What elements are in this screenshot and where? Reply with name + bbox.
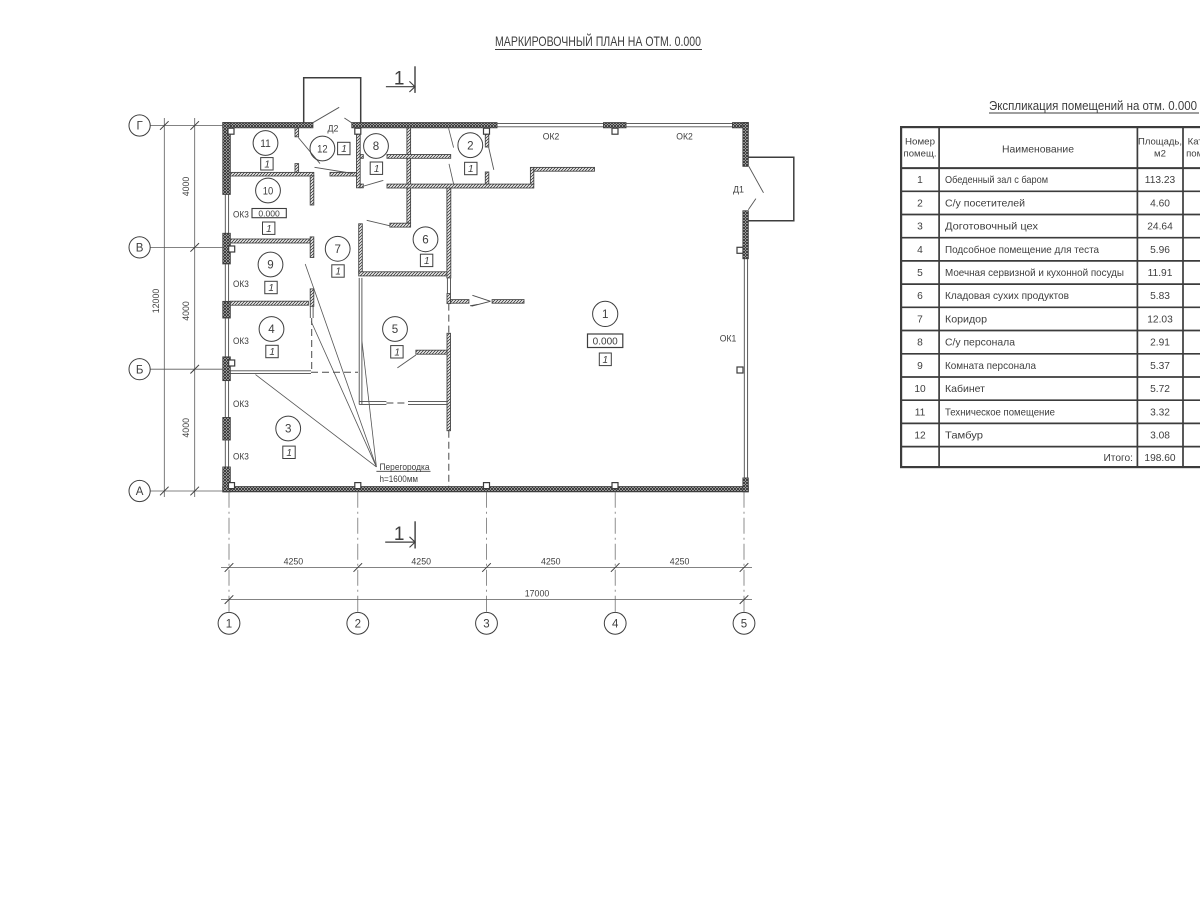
svg-text:ОК3: ОК3	[233, 399, 249, 409]
svg-text:1: 1	[341, 144, 347, 155]
svg-text:Кладовая сухих продуктов: Кладовая сухих продуктов	[945, 291, 1069, 302]
svg-text:h=1600мм: h=1600мм	[380, 474, 419, 484]
svg-text:2: 2	[917, 198, 923, 209]
svg-text:ОК2: ОК2	[543, 132, 560, 142]
svg-text:198.60: 198.60	[1144, 453, 1175, 464]
svg-text:Кабинет: Кабинет	[945, 383, 985, 395]
svg-text:5.96: 5.96	[1150, 245, 1170, 256]
svg-text:МАРКИРОВОЧНЫЙ ПЛАН НА ОТМ. 0.0: МАРКИРОВОЧНЫЙ ПЛАН НА ОТМ. 0.000	[495, 34, 701, 49]
svg-text:3.32: 3.32	[1150, 407, 1170, 418]
svg-text:12: 12	[914, 431, 926, 442]
svg-text:1: 1	[468, 164, 474, 175]
svg-text:Обеденный зал с баром: Обеденный зал с баром	[945, 174, 1048, 186]
svg-text:Подсобное помещение для теста: Подсобное помещение для теста	[945, 244, 1099, 256]
svg-text:1: 1	[917, 175, 923, 186]
svg-text:4: 4	[268, 323, 275, 336]
svg-text:Коридор: Коридор	[945, 314, 987, 325]
svg-text:Экспликация помещений на отм.: Экспликация помещений на отм. 0.000	[989, 98, 1197, 113]
svg-text:Кат.: Кат.	[1188, 137, 1200, 148]
svg-text:Тамбур: Тамбур	[945, 430, 983, 442]
svg-text:ОК1: ОК1	[720, 334, 737, 344]
svg-text:Б: Б	[136, 364, 144, 376]
svg-text:5.83: 5.83	[1150, 291, 1170, 302]
svg-text:5.37: 5.37	[1150, 361, 1170, 372]
svg-text:7: 7	[334, 243, 340, 256]
svg-text:4250: 4250	[284, 557, 304, 567]
svg-text:4000: 4000	[181, 177, 191, 197]
svg-text:8: 8	[373, 140, 379, 153]
svg-text:3: 3	[285, 423, 291, 436]
svg-text:пом.: пом.	[1186, 149, 1200, 160]
svg-text:1: 1	[264, 160, 270, 171]
svg-text:4250: 4250	[541, 557, 561, 567]
svg-text:Д2: Д2	[328, 124, 339, 135]
svg-text:4: 4	[917, 245, 923, 256]
svg-text:12000: 12000	[151, 289, 161, 314]
svg-text:ОК3: ОК3	[233, 336, 249, 346]
svg-text:2: 2	[355, 618, 361, 630]
svg-text:1: 1	[335, 267, 341, 278]
svg-text:1: 1	[603, 355, 609, 366]
svg-text:ОК3: ОК3	[233, 209, 249, 219]
svg-text:11: 11	[915, 407, 926, 418]
svg-text:5: 5	[917, 268, 923, 279]
svg-text:12.03: 12.03	[1147, 314, 1173, 325]
svg-text:В: В	[136, 243, 144, 255]
svg-text:1: 1	[286, 448, 292, 459]
svg-text:Номер: Номер	[905, 137, 935, 148]
svg-text:6: 6	[422, 233, 428, 246]
svg-text:2: 2	[467, 139, 473, 152]
svg-text:4000: 4000	[181, 418, 191, 438]
svg-text:С/у посетителей: С/у посетителей	[945, 198, 1025, 209]
svg-text:Итого:: Итого:	[1103, 453, 1133, 464]
svg-text:3: 3	[917, 222, 923, 233]
svg-text:1: 1	[394, 348, 400, 359]
svg-text:0.000: 0.000	[258, 208, 280, 218]
svg-text:1: 1	[268, 283, 274, 294]
svg-text:3.08: 3.08	[1150, 431, 1170, 442]
svg-text:4.60: 4.60	[1150, 198, 1170, 209]
svg-text:Техническое помещение: Техническое помещение	[945, 407, 1055, 418]
svg-text:10: 10	[914, 384, 926, 395]
svg-text:1: 1	[226, 618, 232, 630]
svg-text:5: 5	[741, 618, 747, 630]
svg-text:Г: Г	[136, 121, 143, 133]
svg-text:24.64: 24.64	[1147, 222, 1173, 233]
svg-text:0.000: 0.000	[593, 337, 618, 348]
svg-text:12: 12	[317, 144, 328, 156]
svg-text:4250: 4250	[670, 557, 690, 567]
svg-text:Моечная сервизной и кухонной п: Моечная сервизной и кухонной посуды	[945, 268, 1124, 279]
svg-text:1: 1	[602, 308, 608, 321]
svg-text:ОК3: ОК3	[233, 279, 249, 289]
svg-text:2.91: 2.91	[1150, 338, 1170, 349]
svg-text:9: 9	[267, 259, 273, 272]
svg-text:11: 11	[260, 138, 271, 150]
svg-text:ОК2: ОК2	[676, 132, 693, 142]
svg-text:7: 7	[917, 314, 923, 325]
svg-text:4000: 4000	[181, 301, 191, 321]
svg-text:Наименование: Наименование	[1002, 145, 1074, 156]
svg-text:Доготовочный цех: Доготовочный цех	[945, 222, 1038, 233]
svg-text:11.91: 11.91	[1148, 268, 1173, 279]
svg-text:113.23: 113.23	[1145, 175, 1176, 186]
svg-text:Д1: Д1	[733, 185, 744, 196]
svg-text:С/у персонала: С/у персонала	[945, 338, 1015, 349]
svg-text:1: 1	[266, 224, 272, 235]
svg-text:3: 3	[483, 618, 489, 630]
svg-text:Площадь,: Площадь,	[1138, 137, 1182, 148]
svg-text:1: 1	[424, 256, 430, 267]
svg-text:Комната персонала: Комната персонала	[945, 361, 1036, 372]
svg-text:6: 6	[917, 291, 923, 302]
svg-text:4250: 4250	[411, 557, 431, 567]
svg-text:А: А	[136, 486, 144, 498]
svg-text:4: 4	[612, 618, 619, 630]
svg-text:10: 10	[263, 186, 274, 198]
svg-text:1: 1	[374, 164, 380, 175]
svg-text:17000: 17000	[525, 589, 550, 599]
svg-text:помещ.: помещ.	[904, 149, 937, 160]
svg-text:5: 5	[392, 323, 398, 336]
svg-text:Перегородка: Перегородка	[380, 462, 431, 472]
svg-text:1: 1	[269, 347, 275, 358]
svg-text:5.72: 5.72	[1150, 384, 1170, 395]
svg-text:9: 9	[917, 361, 923, 372]
svg-text:ОК3: ОК3	[233, 452, 249, 462]
svg-text:м2: м2	[1154, 149, 1166, 160]
svg-text:8: 8	[917, 338, 923, 349]
